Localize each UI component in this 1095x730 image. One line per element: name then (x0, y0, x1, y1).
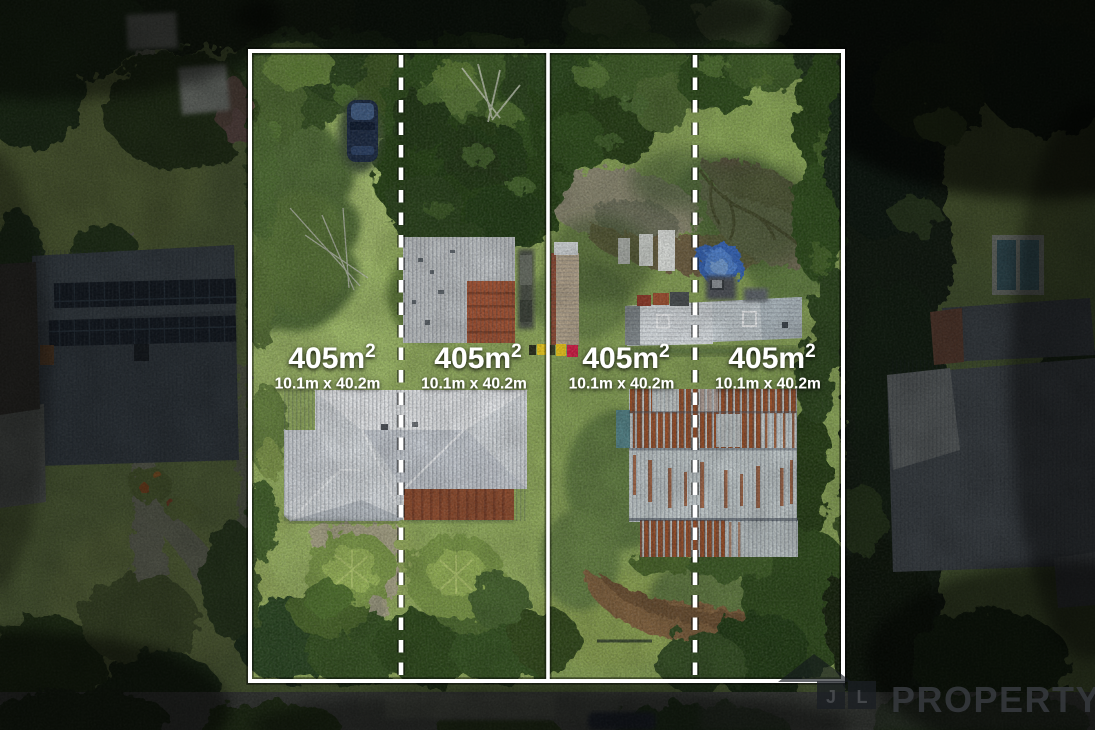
svg-text:10.1m x 40.2m: 10.1m x 40.2m (569, 376, 675, 393)
svg-text:10.1m x 40.2m: 10.1m x 40.2m (275, 376, 381, 393)
svg-text:10.1m x 40.2m: 10.1m x 40.2m (715, 376, 821, 393)
svg-text:405m2: 405m2 (582, 341, 669, 375)
svg-text:405m2: 405m2 (288, 341, 375, 375)
svg-text:405m2: 405m2 (728, 341, 815, 375)
svg-text:405m2: 405m2 (434, 341, 521, 375)
svg-text:J: J (826, 687, 836, 707)
svg-text:10.1m x 40.2m: 10.1m x 40.2m (421, 376, 527, 393)
svg-text:PROPERTY: PROPERTY (891, 679, 1095, 720)
svg-text:L: L (857, 687, 868, 707)
